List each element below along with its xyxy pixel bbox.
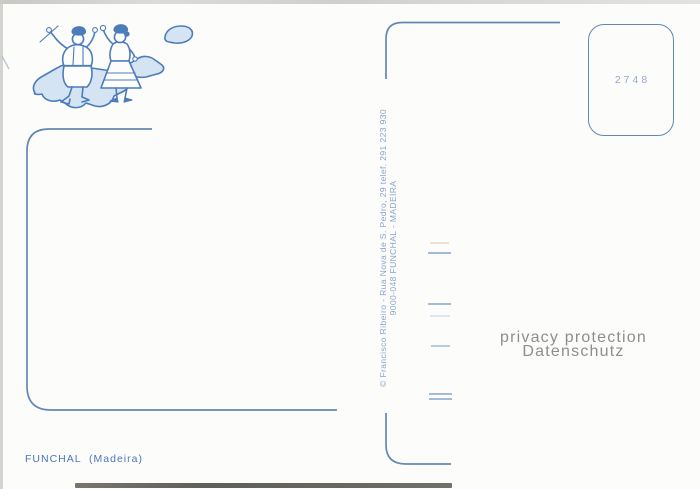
publisher-imprint-line2: 9000-048 FUNCHAL - MADEIRA <box>388 78 398 418</box>
divider-top-line <box>386 23 560 80</box>
caption-title: FUNCHAL (Madeira) <box>25 453 143 465</box>
scratch-mark <box>2 56 9 69</box>
publisher-imprint-line1: © Francisco Ribeiro - Rua Nova de S. Ped… <box>378 78 388 418</box>
privacy-watermark-line2: Datenschutz <box>486 345 661 359</box>
publisher-imprint: © Francisco Ribeiro - Rua Nova de S. Ped… <box>378 78 398 418</box>
address-line-stub-faint <box>430 315 450 317</box>
address-line-stub-faint <box>430 242 449 244</box>
privacy-watermark: privacy protection Datenschutz <box>486 331 661 358</box>
address-line-stub <box>428 252 451 254</box>
address-line-stub <box>428 303 451 305</box>
madeira-map-with-folk-dancers-icon <box>14 4 204 126</box>
porto-santo-island-shape <box>165 26 193 43</box>
madeira-map-shape <box>33 56 163 107</box>
address-line-stub <box>429 398 452 400</box>
stamp-box: 2748 <box>588 24 674 136</box>
postcard-back: 2748 © Francisco Ribeiro - Rua Nova de S… <box>0 0 700 489</box>
address-line-stub <box>429 393 452 395</box>
divider-bottom-line <box>386 413 451 464</box>
picture-frame-border <box>27 129 337 410</box>
stamp-box-number: 2748 <box>612 74 650 86</box>
address-line-stub <box>431 345 450 347</box>
